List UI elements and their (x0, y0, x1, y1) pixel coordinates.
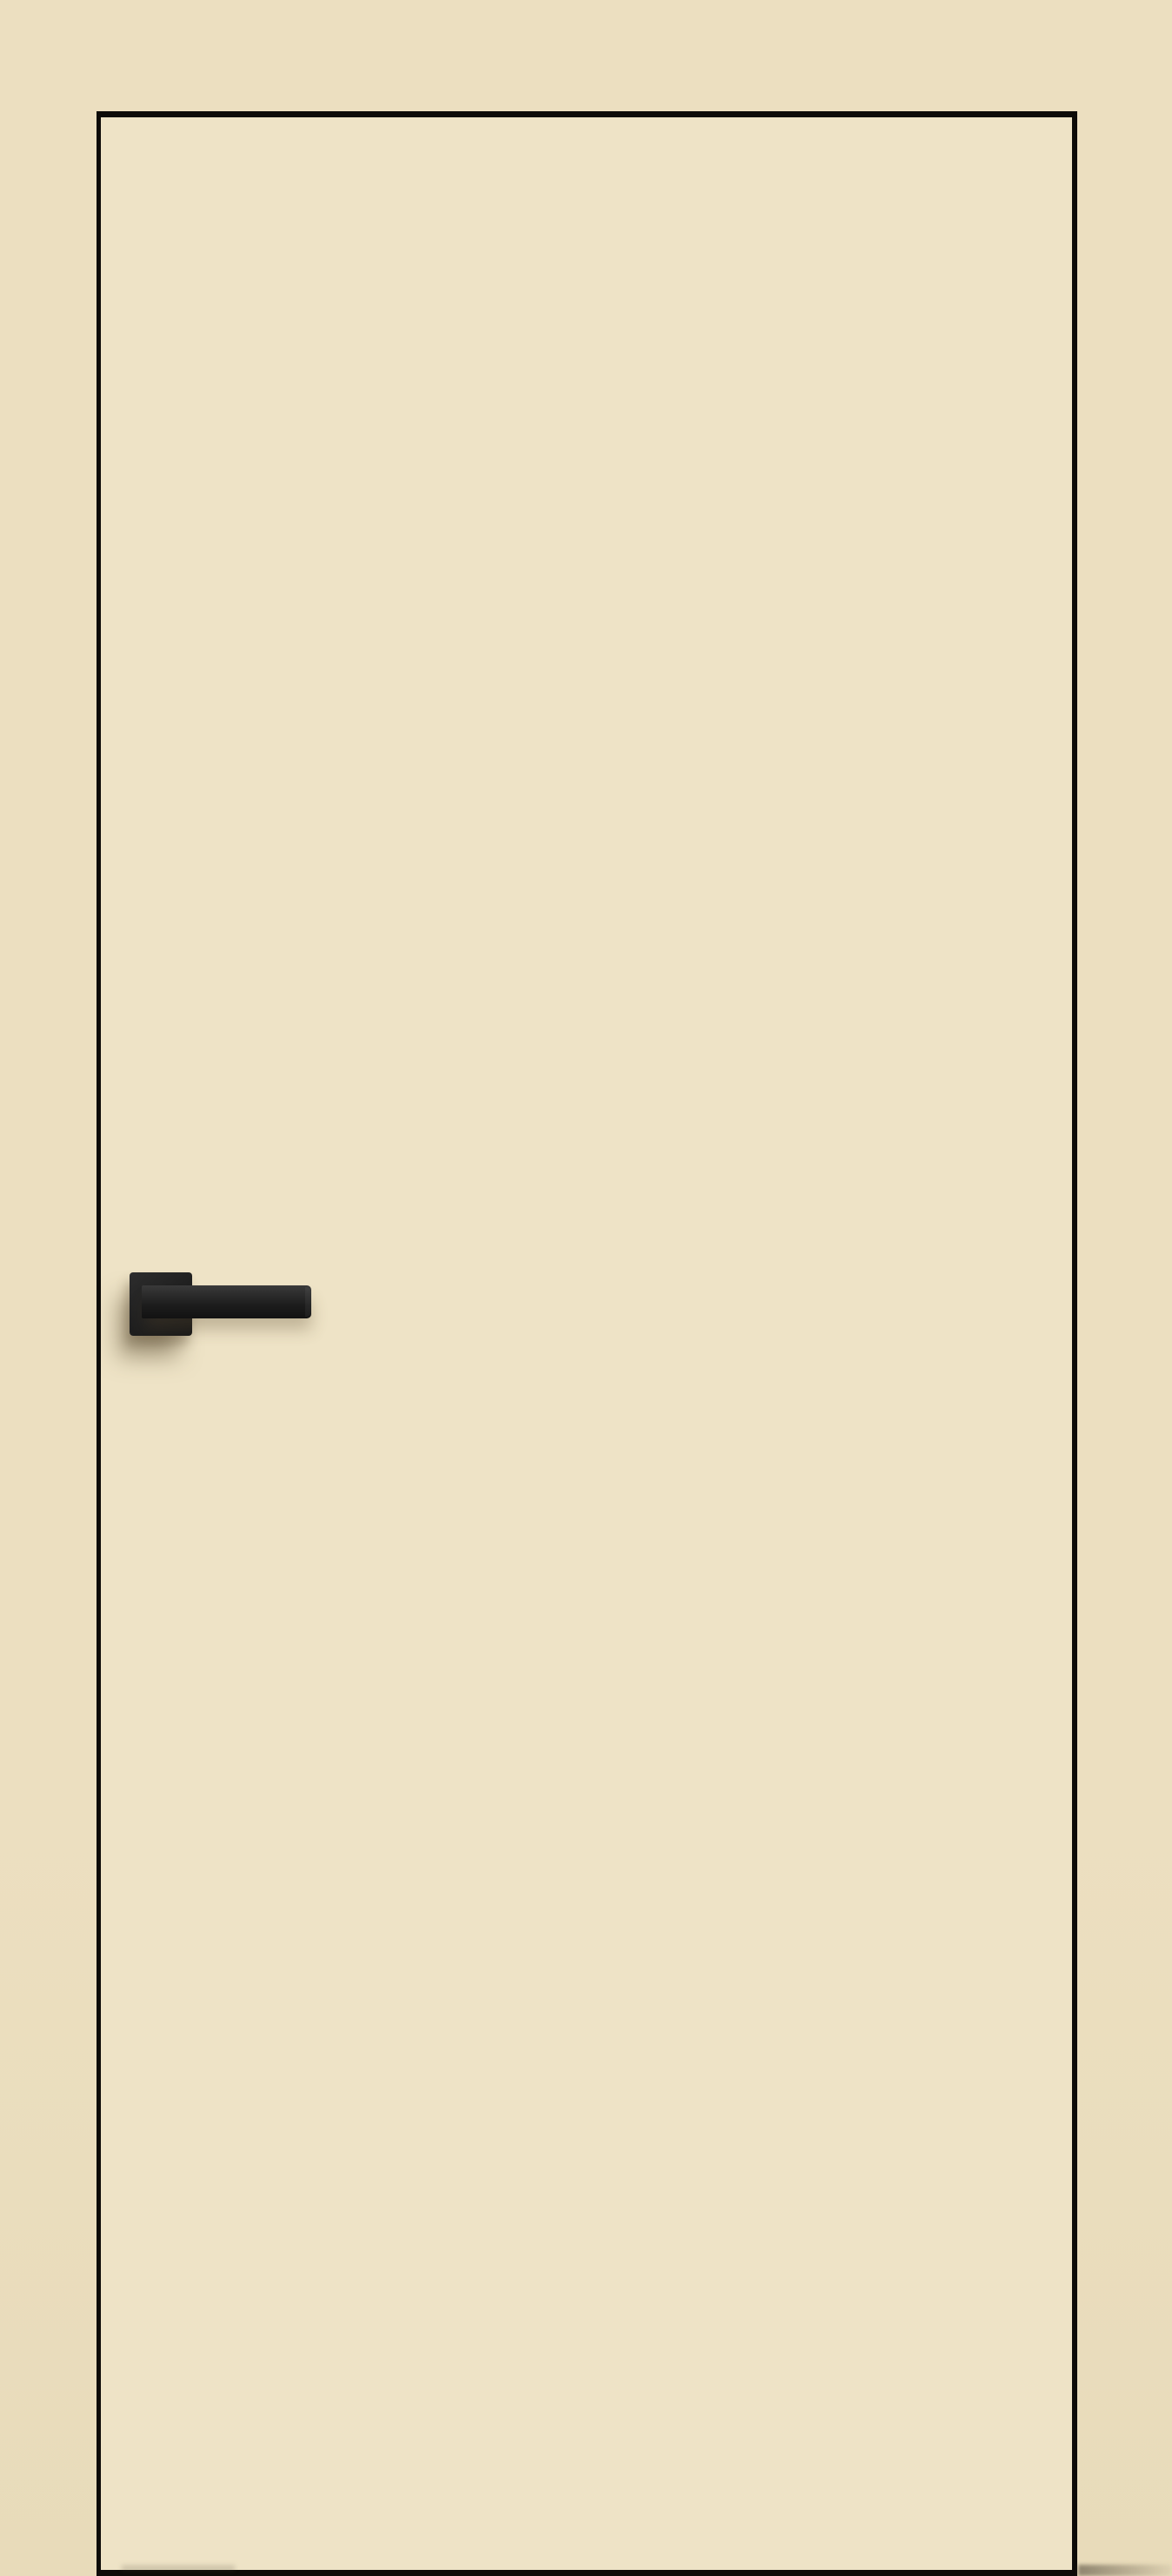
floor-shadow (1078, 2565, 1172, 2576)
door-bottom-shadow (122, 2566, 235, 2571)
product-photo-background (0, 0, 1172, 2576)
door-leaf (97, 111, 1077, 2576)
lever-endcap-highlight (305, 1287, 311, 1317)
door-handle-lever (142, 1285, 311, 1318)
